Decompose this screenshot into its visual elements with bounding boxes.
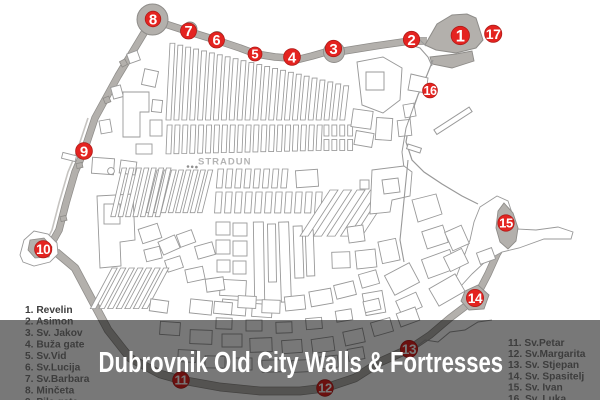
svg-text:8: 8 [149,11,157,28]
svg-text:16: 16 [423,84,437,98]
svg-text:2. Asimon: 2. Asimon [25,317,73,328]
svg-text:13. Sv. Stjepan: 13. Sv. Stjepan [508,360,579,371]
svg-text:4. Buža gate: 4. Buža gate [25,340,85,351]
svg-text:7: 7 [184,24,192,40]
svg-text:2: 2 [407,32,415,49]
svg-text:7. Sv.Barbara: 7. Sv.Barbara [25,374,90,385]
svg-text:8. Minčeta: 8. Minčeta [25,385,75,396]
svg-text:3. Sv. Jakov: 3. Sv. Jakov [25,328,83,339]
svg-text:1: 1 [456,27,465,45]
svg-text:15: 15 [499,216,513,231]
svg-text:14: 14 [468,291,483,306]
svg-text:6: 6 [212,33,220,49]
svg-text:17: 17 [486,26,501,42]
svg-text:Dubrovnik Old City Walls & For: Dubrovnik Old City Walls & Fortresses [99,347,504,378]
svg-text:5. Sv.Vid: 5. Sv.Vid [25,351,67,362]
svg-text:STRADUN: STRADUN [198,157,251,168]
svg-text:15. Sv. Ivan: 15. Sv. Ivan [508,383,563,394]
svg-text:6. Sv.Lucija: 6. Sv.Lucija [25,362,81,373]
svg-text:1. Revelin: 1. Revelin [25,305,73,316]
svg-text:12. Sv.Margarita: 12. Sv.Margarita [508,349,586,360]
svg-text:5: 5 [251,47,258,62]
svg-text:9: 9 [80,143,88,160]
svg-text:10: 10 [36,242,50,257]
svg-text:4: 4 [288,49,297,66]
svg-text:11. Sv.Petar: 11. Sv.Petar [508,338,564,349]
svg-text:3: 3 [329,41,337,58]
svg-text:14. Sv. Spasitelj: 14. Sv. Spasitelj [508,371,584,382]
svg-text:16. Sv. Luka: 16. Sv. Luka [508,394,566,400]
